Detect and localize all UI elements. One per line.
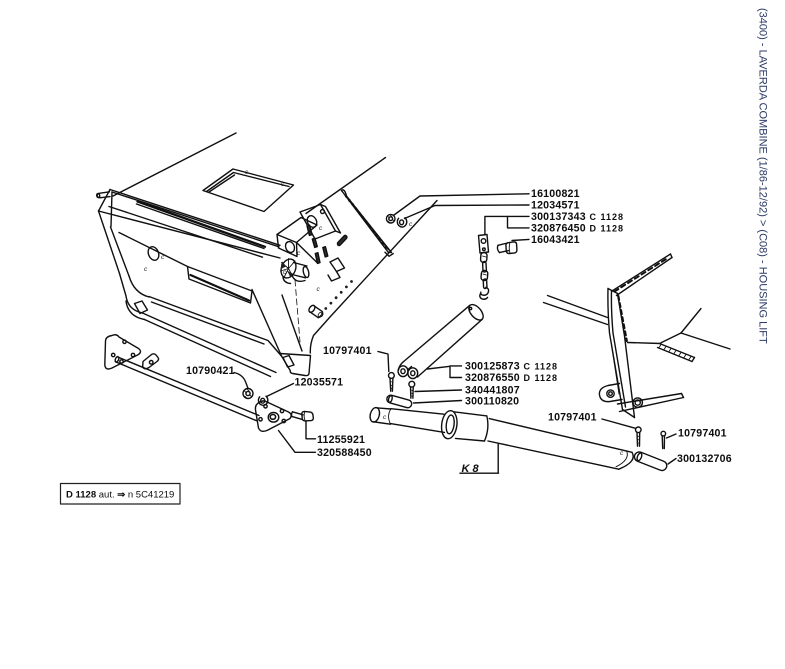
svg-text:D 1128: D 1128 (524, 373, 559, 383)
svg-text:320588450: 320588450 (317, 447, 372, 459)
svg-text:C 1128: C 1128 (524, 362, 559, 372)
svg-text:(3400) - LAVERDA COMBINE (1/86: (3400) - LAVERDA COMBINE (1/86-12/92) > … (757, 8, 769, 344)
svg-text:16100821: 16100821 (531, 188, 580, 200)
svg-text:10797401: 10797401 (678, 428, 727, 440)
svg-text:D 1128: D 1128 (590, 224, 625, 234)
svg-text:10797401: 10797401 (323, 345, 372, 357)
svg-text:c: c (319, 225, 323, 232)
svg-text:11255921: 11255921 (317, 434, 365, 446)
svg-text:12035571: 12035571 (295, 377, 344, 389)
svg-text:10790421: 10790421 (186, 365, 235, 377)
svg-text:K 8: K 8 (462, 463, 480, 475)
svg-text:320876450: 320876450 (531, 223, 586, 235)
svg-text:12034571: 12034571 (531, 200, 580, 212)
svg-text:c: c (297, 250, 301, 257)
svg-text:c: c (317, 286, 321, 293)
svg-text:c: c (383, 414, 387, 421)
svg-text:300137343: 300137343 (531, 211, 586, 223)
svg-text:300110820: 300110820 (465, 396, 519, 408)
svg-text:c: c (144, 266, 148, 273)
svg-text:c: c (620, 450, 624, 457)
svg-text:300132706: 300132706 (677, 453, 732, 465)
svg-text:D 1128 aut. ⇒ n 5C41219: D 1128 aut. ⇒ n 5C41219 (66, 490, 174, 501)
svg-text:300125873: 300125873 (465, 361, 520, 373)
svg-text:16043421: 16043421 (531, 234, 580, 246)
svg-text:10797401: 10797401 (548, 412, 597, 424)
svg-text:320876550: 320876550 (465, 372, 520, 384)
svg-text:C 1128: C 1128 (590, 212, 625, 222)
